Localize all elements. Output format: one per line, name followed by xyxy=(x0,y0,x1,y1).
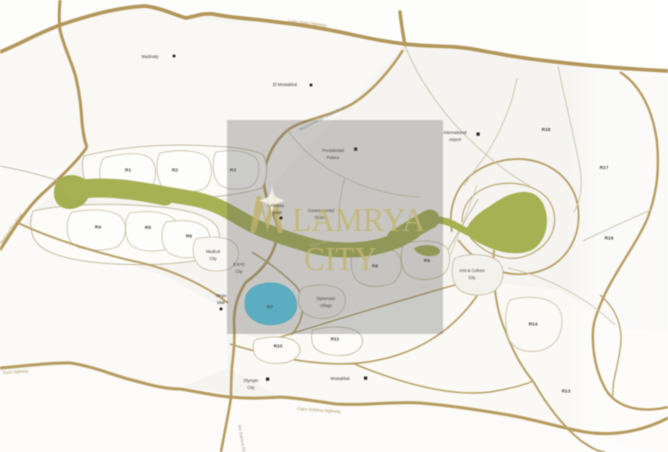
svg-text:R13: R13 xyxy=(562,389,571,395)
svg-text:Mall: Mall xyxy=(217,300,225,305)
svg-text:R10: R10 xyxy=(274,344,283,350)
svg-text:Arts & Culture: Arts & Culture xyxy=(459,268,485,273)
svg-text:R2: R2 xyxy=(172,168,178,174)
svg-text:Madinaty: Madinaty xyxy=(142,54,160,59)
svg-text:R16: R16 xyxy=(605,236,614,242)
svg-text:R1: R1 xyxy=(125,168,131,174)
svg-text:R6: R6 xyxy=(186,234,192,240)
svg-text:Almasa: Almasa xyxy=(270,203,285,208)
svg-text:City: City xyxy=(209,256,217,261)
svg-text:LAMRYA: LAMRYA xyxy=(292,202,425,239)
svg-text:R4: R4 xyxy=(95,225,101,231)
svg-text:El Mostakbal: El Mostakbal xyxy=(273,82,297,87)
svg-text:City: City xyxy=(468,275,476,280)
svg-text:R11: R11 xyxy=(331,337,340,343)
svg-text:R14: R14 xyxy=(529,322,538,328)
svg-text:Airport: Airport xyxy=(449,137,462,142)
svg-text:CITY: CITY xyxy=(304,241,377,278)
svg-text:Mega: Mega xyxy=(216,293,227,298)
svg-text:City: City xyxy=(247,385,255,390)
svg-text:R18: R18 xyxy=(542,127,551,133)
svg-text:Hotel: Hotel xyxy=(272,210,282,215)
svg-text:R17: R17 xyxy=(600,165,609,171)
svg-text:Medical: Medical xyxy=(206,249,220,254)
svg-text:Olympic: Olympic xyxy=(243,378,258,383)
svg-text:International: International xyxy=(443,130,466,135)
svg-text:R5: R5 xyxy=(145,225,151,231)
svg-text:Mostakbal: Mostakbal xyxy=(330,376,349,381)
